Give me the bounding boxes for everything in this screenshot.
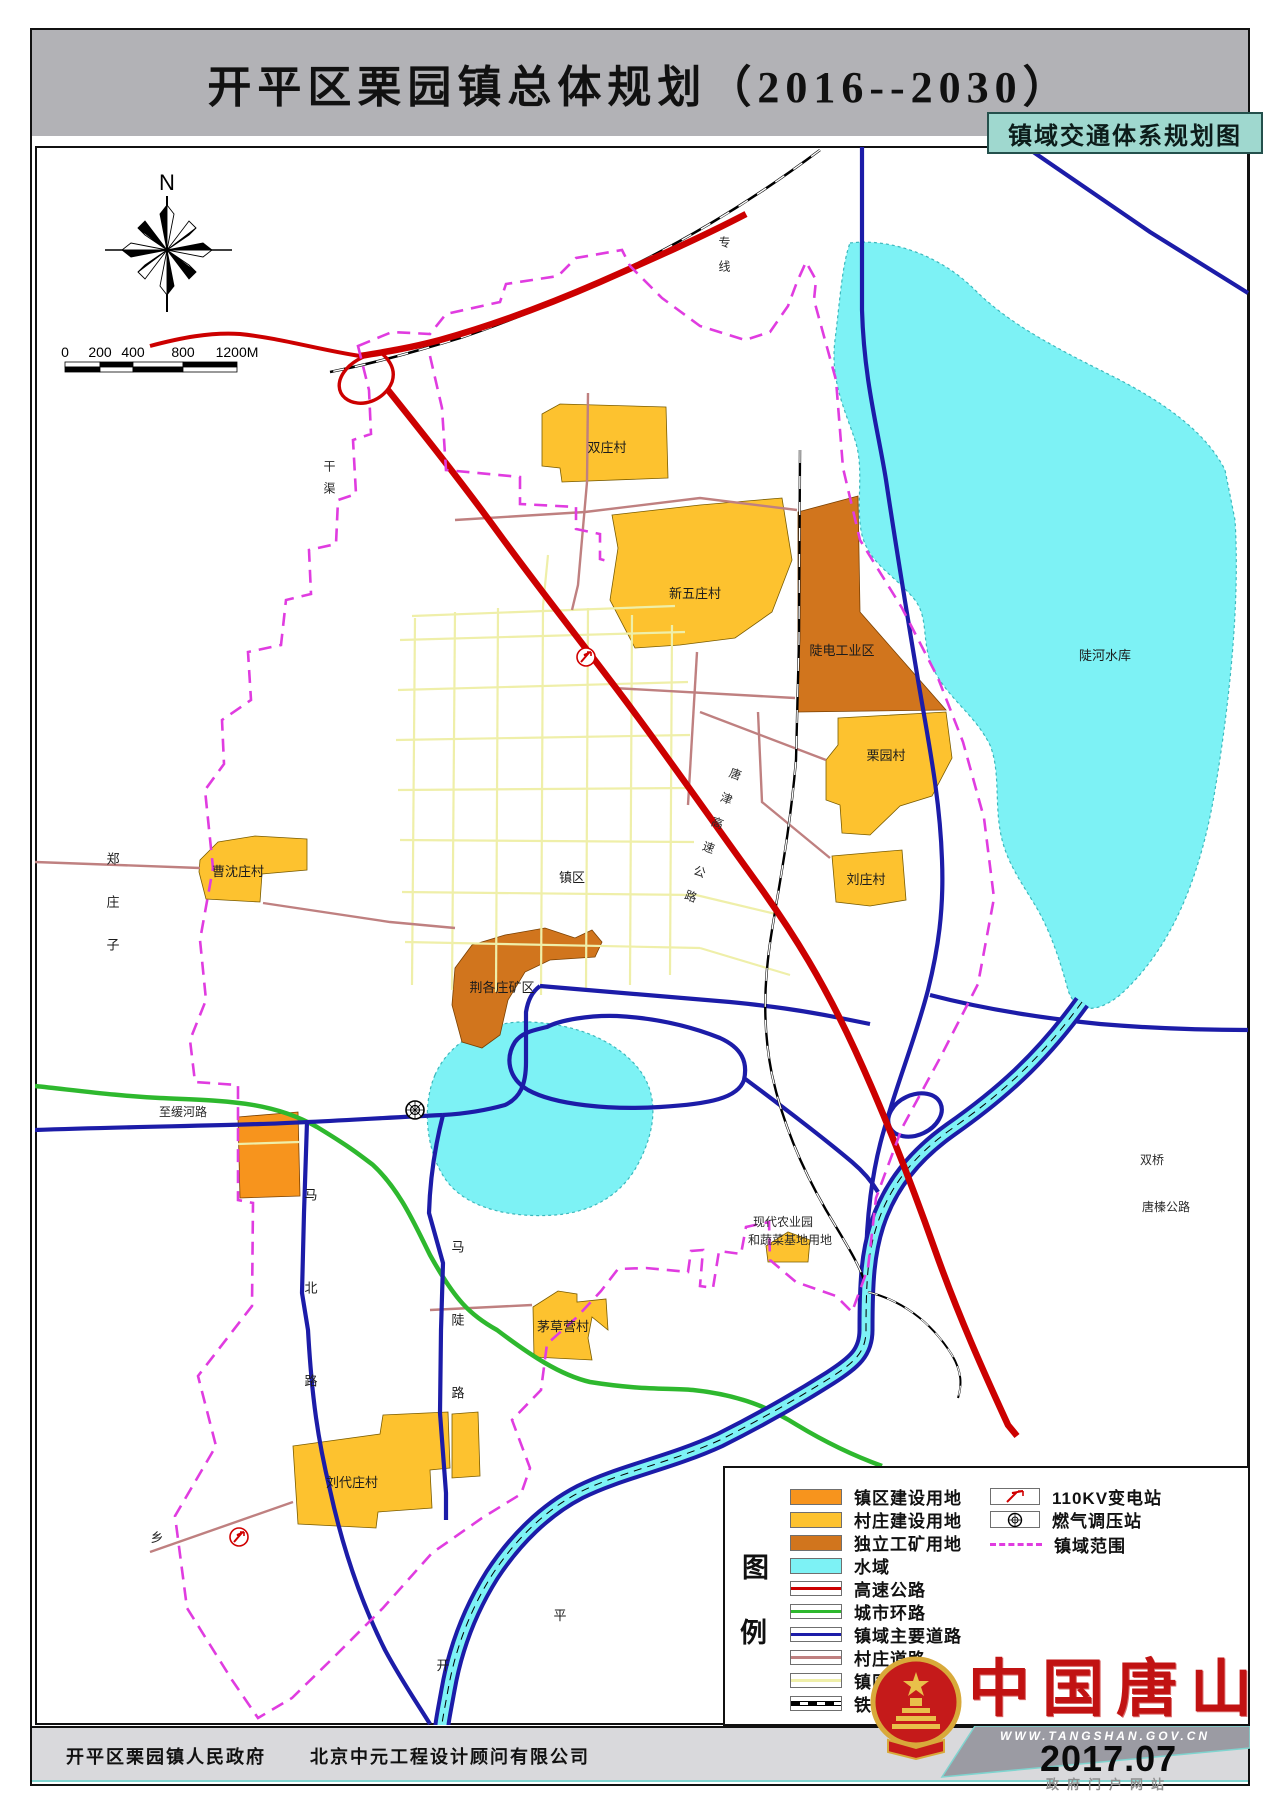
label-shuangqiao: 双桥 — [1140, 1153, 1164, 1167]
legend-title-char: 图 — [742, 1546, 769, 1585]
main-road-swatch — [790, 1627, 842, 1642]
label-agri-line2: 和蔬菜基地用地 — [748, 1233, 832, 1247]
industrial-swatch — [790, 1535, 842, 1551]
label-zhuanxian: 专线 — [717, 235, 731, 284]
label-maocaoyingcun: 茅草营村 — [537, 1319, 589, 1334]
label-agri-line1: 现代农业园 — [753, 1215, 813, 1229]
label-liuzhuangcun: 刘庄村 — [846, 872, 885, 887]
label-zhenqu: 镇区 — [559, 870, 585, 885]
scale-tick: 0 — [61, 344, 69, 360]
substation-legend-icon — [990, 1488, 1040, 1505]
footer-credits: 开平区栗园镇人民政府 北京中元工程设计顾问有限公司 — [66, 1743, 590, 1769]
legend-item-gas-station: 燃气调压站 — [990, 1507, 1142, 1532]
label-xiang: 乡 — [150, 1530, 163, 1545]
scale-tick: 200 — [88, 344, 112, 360]
label-douhe-reservoir: 陡河水库 — [1079, 648, 1131, 663]
label-kai: 开 — [436, 1658, 449, 1673]
label-xinwuzhuangcun: 新五庄村 — [669, 586, 721, 601]
subtitle-text: 镇域交通体系规划图 — [1008, 116, 1242, 151]
legend-item-expressway: 高速公路 — [790, 1576, 926, 1601]
label-madoulu: 马陡路 — [450, 1240, 465, 1459]
town-construction-swatch — [790, 1489, 842, 1505]
ring-road-swatch — [790, 1604, 842, 1619]
expressway-swatch — [790, 1581, 842, 1596]
legend-item-water: 水域 — [790, 1553, 890, 1578]
scale-tick: 1200M — [216, 344, 259, 360]
village-construction-swatch — [790, 1512, 842, 1528]
label-zhihuanhelu: 至缓河路 — [159, 1104, 207, 1119]
label-zhengzhuangzi: 郑庄子 — [105, 852, 120, 981]
legend-item-village-construction: 村庄建设用地 — [790, 1507, 962, 1532]
label-ping: 平 — [553, 1608, 566, 1623]
substation-icon — [577, 648, 595, 666]
label-shuangzhuangcun: 双庄村 — [587, 440, 626, 455]
legend-item-boundary: 镇域范围 — [990, 1532, 1126, 1557]
lake-water — [427, 1022, 653, 1216]
legend-title-char: 例 — [740, 1611, 767, 1650]
legend-item-substation: 110KV变电站 — [990, 1484, 1162, 1509]
site-name: 中国唐山 — [968, 1638, 1264, 1728]
footer-designer: 北京中元工程设计顾问有限公司 — [310, 1743, 590, 1769]
gas-legend-icon — [990, 1511, 1040, 1528]
label-mabeilu: 马北路 — [303, 1188, 318, 1467]
label-liyuancun: 栗园村 — [866, 748, 905, 763]
legend-item-main-road: 镇域主要道路 — [790, 1622, 962, 1647]
scale-tick: 400 — [121, 344, 145, 360]
subtitle-box: 镇域交通体系规划图 — [987, 112, 1263, 154]
page-title: 开平区栗园镇总体规划（2016--2030） — [207, 51, 1072, 115]
compass-north-label: N — [159, 170, 175, 195]
site-tagline: 政府门户网站 — [1046, 1774, 1172, 1793]
label-tangzhen-highway: 唐榛公路 — [1142, 1199, 1190, 1214]
label-doudian-industrial: 陡电工业区 — [809, 643, 874, 658]
label-caoshenzhuangcun: 曹沈庄村 — [212, 864, 264, 879]
gas-regulator-icon — [406, 1101, 424, 1119]
boundary-swatch — [990, 1543, 1042, 1546]
village-road-swatch — [790, 1650, 842, 1665]
label-ganqu: 干渠 — [322, 460, 336, 504]
town-road-swatch — [790, 1673, 842, 1688]
railway-swatch — [790, 1696, 842, 1711]
national-emblem-icon — [868, 1656, 964, 1760]
legend-item-ring-road: 城市环路 — [790, 1599, 926, 1624]
substation-icon — [230, 1528, 248, 1546]
legend-item-town-construction: 镇区建设用地 — [790, 1484, 962, 1509]
legend-item-industrial: 独立工矿用地 — [790, 1530, 962, 1555]
footer-government: 开平区栗园镇人民政府 — [66, 1743, 266, 1769]
label-jinggezhuang-mine: 荆各庄矿区 — [469, 980, 534, 995]
label-liudaizhuangcun: 刘代庄村 — [326, 1475, 378, 1490]
water-swatch — [790, 1558, 842, 1574]
scale-tick: 800 — [171, 344, 195, 360]
